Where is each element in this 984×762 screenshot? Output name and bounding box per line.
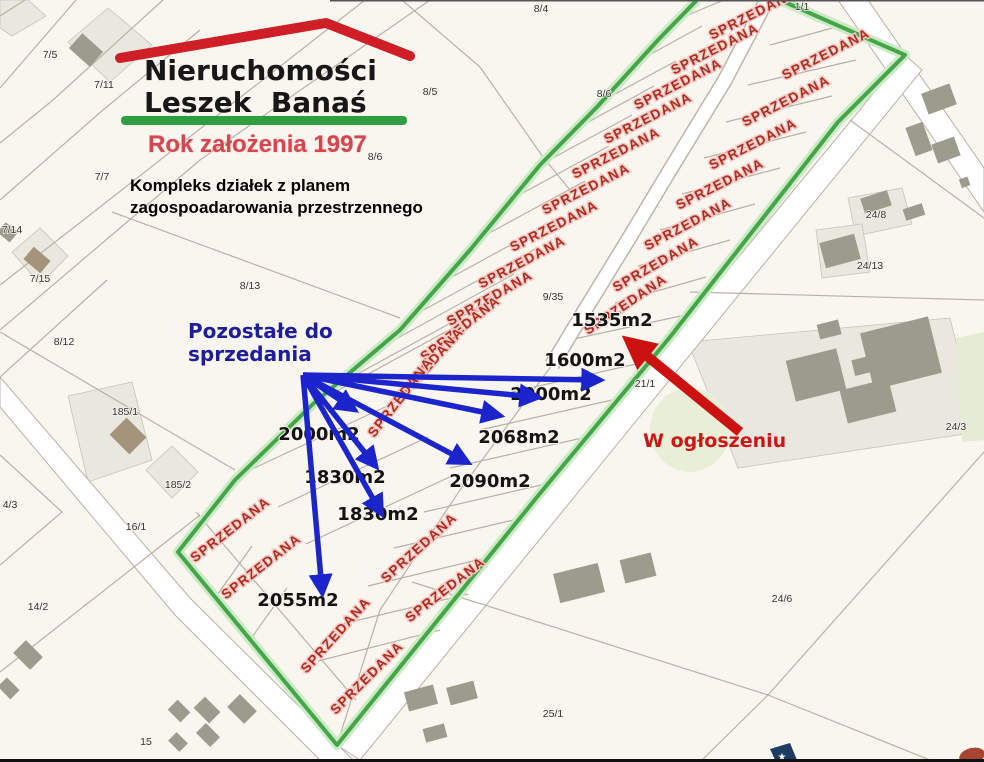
agency-tagline: Rok założenia 1997	[148, 131, 367, 158]
parcel-number: 8/5	[423, 86, 438, 98]
parcel-number: 8/6	[368, 151, 383, 163]
parcel-number: 8/12	[54, 336, 75, 348]
map-subtitle-line1: Kompleks działek z planem	[130, 176, 350, 195]
parcel-number: 185/2	[165, 479, 191, 491]
parcel-number: 7/7	[95, 171, 110, 183]
agency-name-line2: Leszek Banaś	[144, 86, 367, 119]
parcel-number: 21/1	[635, 378, 656, 390]
parcel-number: 7/15	[30, 273, 51, 285]
parcel-number: 9/35	[543, 291, 564, 303]
top-border	[330, 0, 984, 2]
green-bar	[121, 116, 407, 125]
parcel-number: 14/2	[28, 601, 49, 613]
plot-area-label: 2068m2	[478, 427, 559, 448]
parcel-number: 24/3	[946, 421, 967, 433]
map-subtitle-line2: zagospoadarowania przestrzennego	[130, 198, 423, 217]
map-canvas: SPRZEDANASPRZEDANASPRZEDANASPRZEDANASPRZ…	[0, 0, 984, 762]
plot-area-label: 1830m2	[304, 467, 385, 488]
plot-area-label: 1600m2	[544, 350, 625, 371]
parcel-number: 25/1	[543, 708, 564, 720]
parcel-number: 24/6	[772, 593, 793, 605]
parcel-number: 24/8	[866, 209, 887, 221]
parcel-number: 7/5	[43, 49, 58, 61]
remaining-note-line1: Pozostałe do	[188, 319, 333, 343]
parcel-number: 15	[140, 736, 152, 748]
parcel-number: 185/1	[112, 406, 138, 418]
parcel-number: 4/3	[3, 499, 18, 511]
parcel-number: 16/1	[126, 521, 147, 533]
parcel-number: 24/13	[857, 260, 883, 272]
parcel-number: 8/4	[534, 3, 549, 15]
in-ad-note: W ogłoszeniu	[643, 430, 786, 452]
parcel-number: 7/14	[2, 224, 23, 236]
plot-area-label: 1535m2	[571, 310, 652, 331]
agency-name-line1: Nieruchomości	[144, 54, 377, 87]
cadastral-map: SPRZEDANASPRZEDANASPRZEDANASPRZEDANASPRZ…	[0, 0, 984, 762]
parcel-number: 7/11	[94, 79, 114, 91]
parcel-number: 8/13	[240, 280, 261, 292]
plot-area-label: 2090m2	[449, 471, 530, 492]
parcel-number: 8/6	[597, 88, 612, 100]
plot-area-label: 2055m2	[257, 590, 338, 611]
parcel-number: 1/1	[795, 1, 810, 13]
remaining-note-line2: sprzedania	[188, 342, 312, 366]
